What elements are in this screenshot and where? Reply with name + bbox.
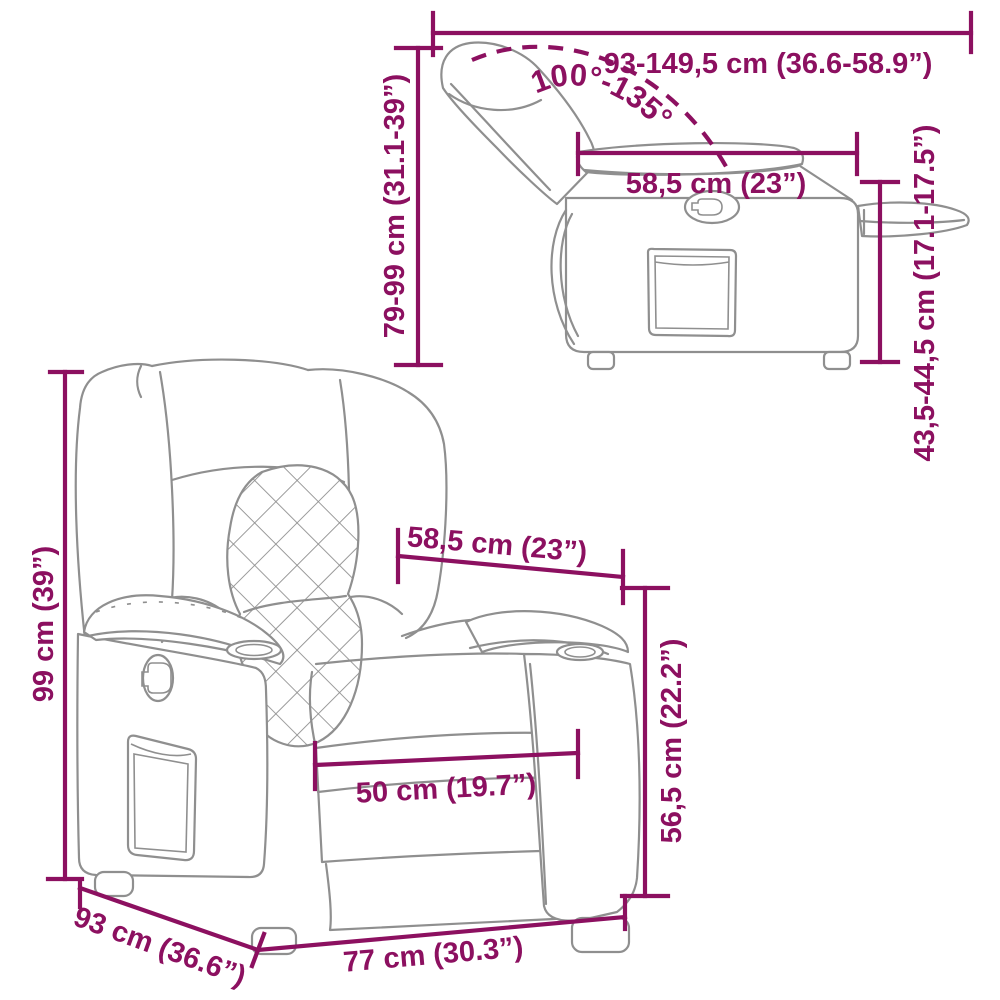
side-view: 93-149,5 cm (36.6-58.9”) 100°-135° 79-99… [379, 13, 971, 461]
side-foot-right [824, 352, 850, 369]
side-seat-depth-label: 58,5 cm (23”) [626, 168, 807, 200]
dimension-diagram-svg: 93-149,5 cm (36.6-58.9”) 100°-135° 79-99… [0, 0, 1000, 1000]
front-view: 99 cm (39”) 58,5 cm (23”) 56,5 cm (22.2”… [28, 359, 688, 993]
front-recline-handle [143, 655, 173, 701]
side-seat-rear-line [800, 166, 852, 200]
side-pocket [648, 249, 736, 336]
back-height-label: 79-99 cm (31.1-39”) [379, 74, 411, 338]
front-foot-left [95, 872, 133, 896]
dimension-diagram-page: 93-149,5 cm (36.6-58.9”) 100°-135° 79-99… [0, 0, 1000, 1000]
front-seat-height-label: 56,5 cm (22.2”) [656, 639, 688, 844]
right-armrest-roll [466, 611, 628, 652]
front-kick-panel [326, 852, 574, 930]
front-view-chair-sketch [76, 359, 640, 954]
right-armrest-panel [524, 654, 640, 921]
side-foot-left [588, 352, 614, 369]
overall-height-label: 99 cm (39”) [28, 546, 60, 702]
total-length-label: 93-149,5 cm (36.6-58.9”) [604, 48, 933, 80]
side-view-chair-sketch [441, 43, 968, 369]
seat-height-label: 43,5-44,5 cm (17.1-17.5”) [909, 125, 941, 462]
